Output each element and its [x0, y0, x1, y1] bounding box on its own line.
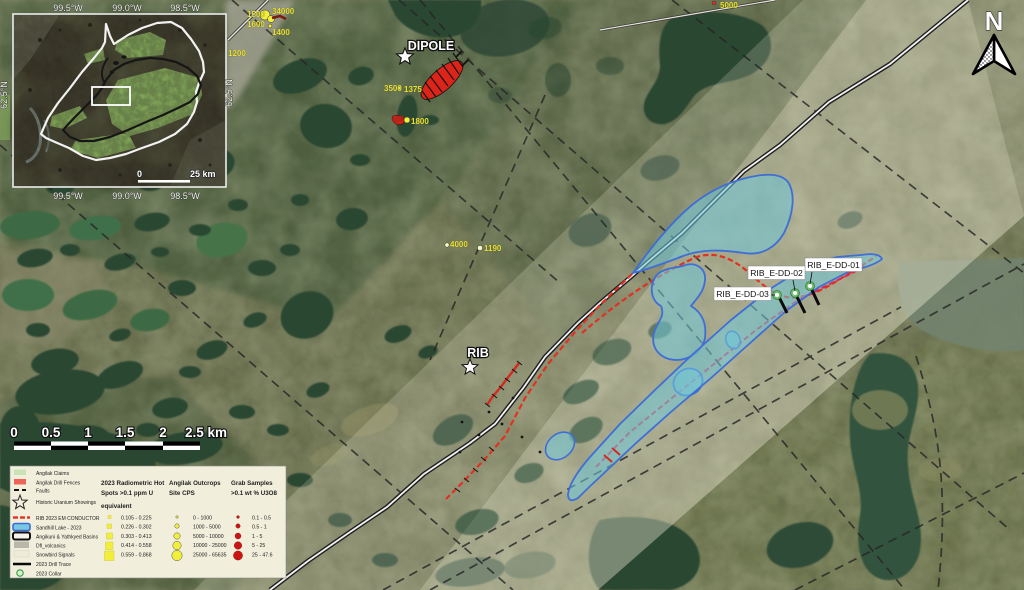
- svg-text:1190: 1190: [484, 244, 502, 253]
- svg-text:0: 0: [137, 169, 142, 179]
- svg-text:0.5: 0.5: [42, 425, 61, 440]
- svg-text:Angilak Outcrops: Angilak Outcrops: [169, 480, 221, 487]
- svg-text:1.5: 1.5: [116, 425, 135, 440]
- svg-text:N: N: [985, 6, 1004, 36]
- svg-text:0: 0: [10, 425, 18, 440]
- svg-text:Spots >0.1 ppm U: Spots >0.1 ppm U: [101, 490, 154, 497]
- svg-text:0.414 - 0.558: 0.414 - 0.558: [121, 543, 152, 549]
- svg-text:34000: 34000: [272, 7, 295, 16]
- svg-text:2023 Collar: 2023 Collar: [36, 572, 62, 578]
- svg-text:25 - 47.6: 25 - 47.6: [252, 553, 273, 559]
- svg-text:5000 - 10000: 5000 - 10000: [193, 534, 224, 540]
- svg-text:0.226 - 0.302: 0.226 - 0.302: [121, 525, 152, 531]
- svg-text:3500: 3500: [384, 84, 402, 93]
- svg-text:2.5 km: 2.5 km: [185, 425, 227, 440]
- svg-text:DIPOLE: DIPOLE: [408, 39, 455, 53]
- svg-text:10000 - 25000: 10000 - 25000: [193, 543, 227, 549]
- svg-text:99.5°W: 99.5°W: [53, 191, 83, 201]
- svg-text:99.0°W: 99.0°W: [112, 191, 142, 201]
- svg-text:1375: 1375: [404, 85, 422, 94]
- svg-text:1500: 1500: [247, 10, 265, 19]
- svg-text:99.5°W: 99.5°W: [53, 3, 83, 13]
- svg-text:2023 Radiometric Hot: 2023 Radiometric Hot: [101, 480, 164, 487]
- svg-text:1400: 1400: [272, 28, 290, 37]
- svg-text:RIB: RIB: [467, 346, 489, 360]
- svg-text:RIB_E-DD-01: RIB_E-DD-01: [807, 260, 860, 270]
- svg-text:Faults: Faults: [36, 489, 50, 495]
- svg-text:5000: 5000: [720, 1, 738, 10]
- svg-text:1800: 1800: [411, 117, 429, 126]
- svg-text:RIB 2023 EM CONDUCTOR: RIB 2023 EM CONDUCTOR: [36, 516, 100, 522]
- svg-text:1: 1: [84, 425, 92, 440]
- svg-text:RIB_E-DD-02: RIB_E-DD-02: [750, 268, 803, 278]
- svg-text:1000 - 5000: 1000 - 5000: [193, 525, 221, 531]
- svg-text:25000 - 65635: 25000 - 65635: [193, 553, 227, 559]
- svg-text:Dfl_volcanics: Dfl_volcanics: [36, 544, 66, 550]
- svg-text:0.5 - 1: 0.5 - 1: [252, 525, 267, 531]
- svg-text:Sandhill Lake - 2023: Sandhill Lake - 2023: [36, 526, 82, 532]
- svg-text:Angilak Claims: Angilak Claims: [36, 471, 70, 477]
- svg-text:Historic Uranium Showings: Historic Uranium Showings: [36, 500, 97, 506]
- svg-text:RIB_E-DD-03: RIB_E-DD-03: [716, 289, 769, 299]
- svg-text:0.1 - 0.5: 0.1 - 0.5: [252, 516, 271, 522]
- svg-text:4000: 4000: [450, 240, 468, 249]
- svg-text:98.5°W: 98.5°W: [170, 191, 200, 201]
- svg-text:Grab Samples: Grab Samples: [231, 480, 273, 487]
- svg-text:Angikuni & Yathkyed Basins: Angikuni & Yathkyed Basins: [36, 535, 99, 541]
- svg-text:62.5°N: 62.5°N: [0, 81, 9, 109]
- svg-text:Site CPS: Site CPS: [169, 490, 195, 497]
- svg-text:equivalent: equivalent: [101, 503, 132, 510]
- svg-text:0.303 - 0.413: 0.303 - 0.413: [121, 534, 152, 540]
- svg-text:2: 2: [159, 425, 167, 440]
- svg-text:Angilak Drill Fences: Angilak Drill Fences: [36, 481, 81, 487]
- svg-text:1 - 5: 1 - 5: [252, 534, 262, 540]
- svg-text:62.5°N: 62.5°N: [224, 79, 234, 107]
- svg-text:0.105 - 0.225: 0.105 - 0.225: [121, 516, 152, 522]
- svg-text:98.5°W: 98.5°W: [170, 3, 200, 13]
- svg-text:99.0°W: 99.0°W: [112, 3, 142, 13]
- svg-text:1200: 1200: [228, 49, 246, 58]
- svg-text:Snowbird Signals: Snowbird Signals: [36, 553, 75, 559]
- svg-text:1600: 1600: [247, 20, 265, 29]
- svg-text:0.559 - 0.868: 0.559 - 0.868: [121, 553, 152, 559]
- svg-text:>0.1 wt % U3O8: >0.1 wt % U3O8: [231, 490, 277, 497]
- svg-text:0 - 1000: 0 - 1000: [193, 516, 212, 522]
- svg-text:25 km: 25 km: [190, 169, 216, 179]
- svg-text:2023 Drill Trace: 2023 Drill Trace: [36, 562, 71, 568]
- svg-text:5 - 25: 5 - 25: [252, 543, 265, 549]
